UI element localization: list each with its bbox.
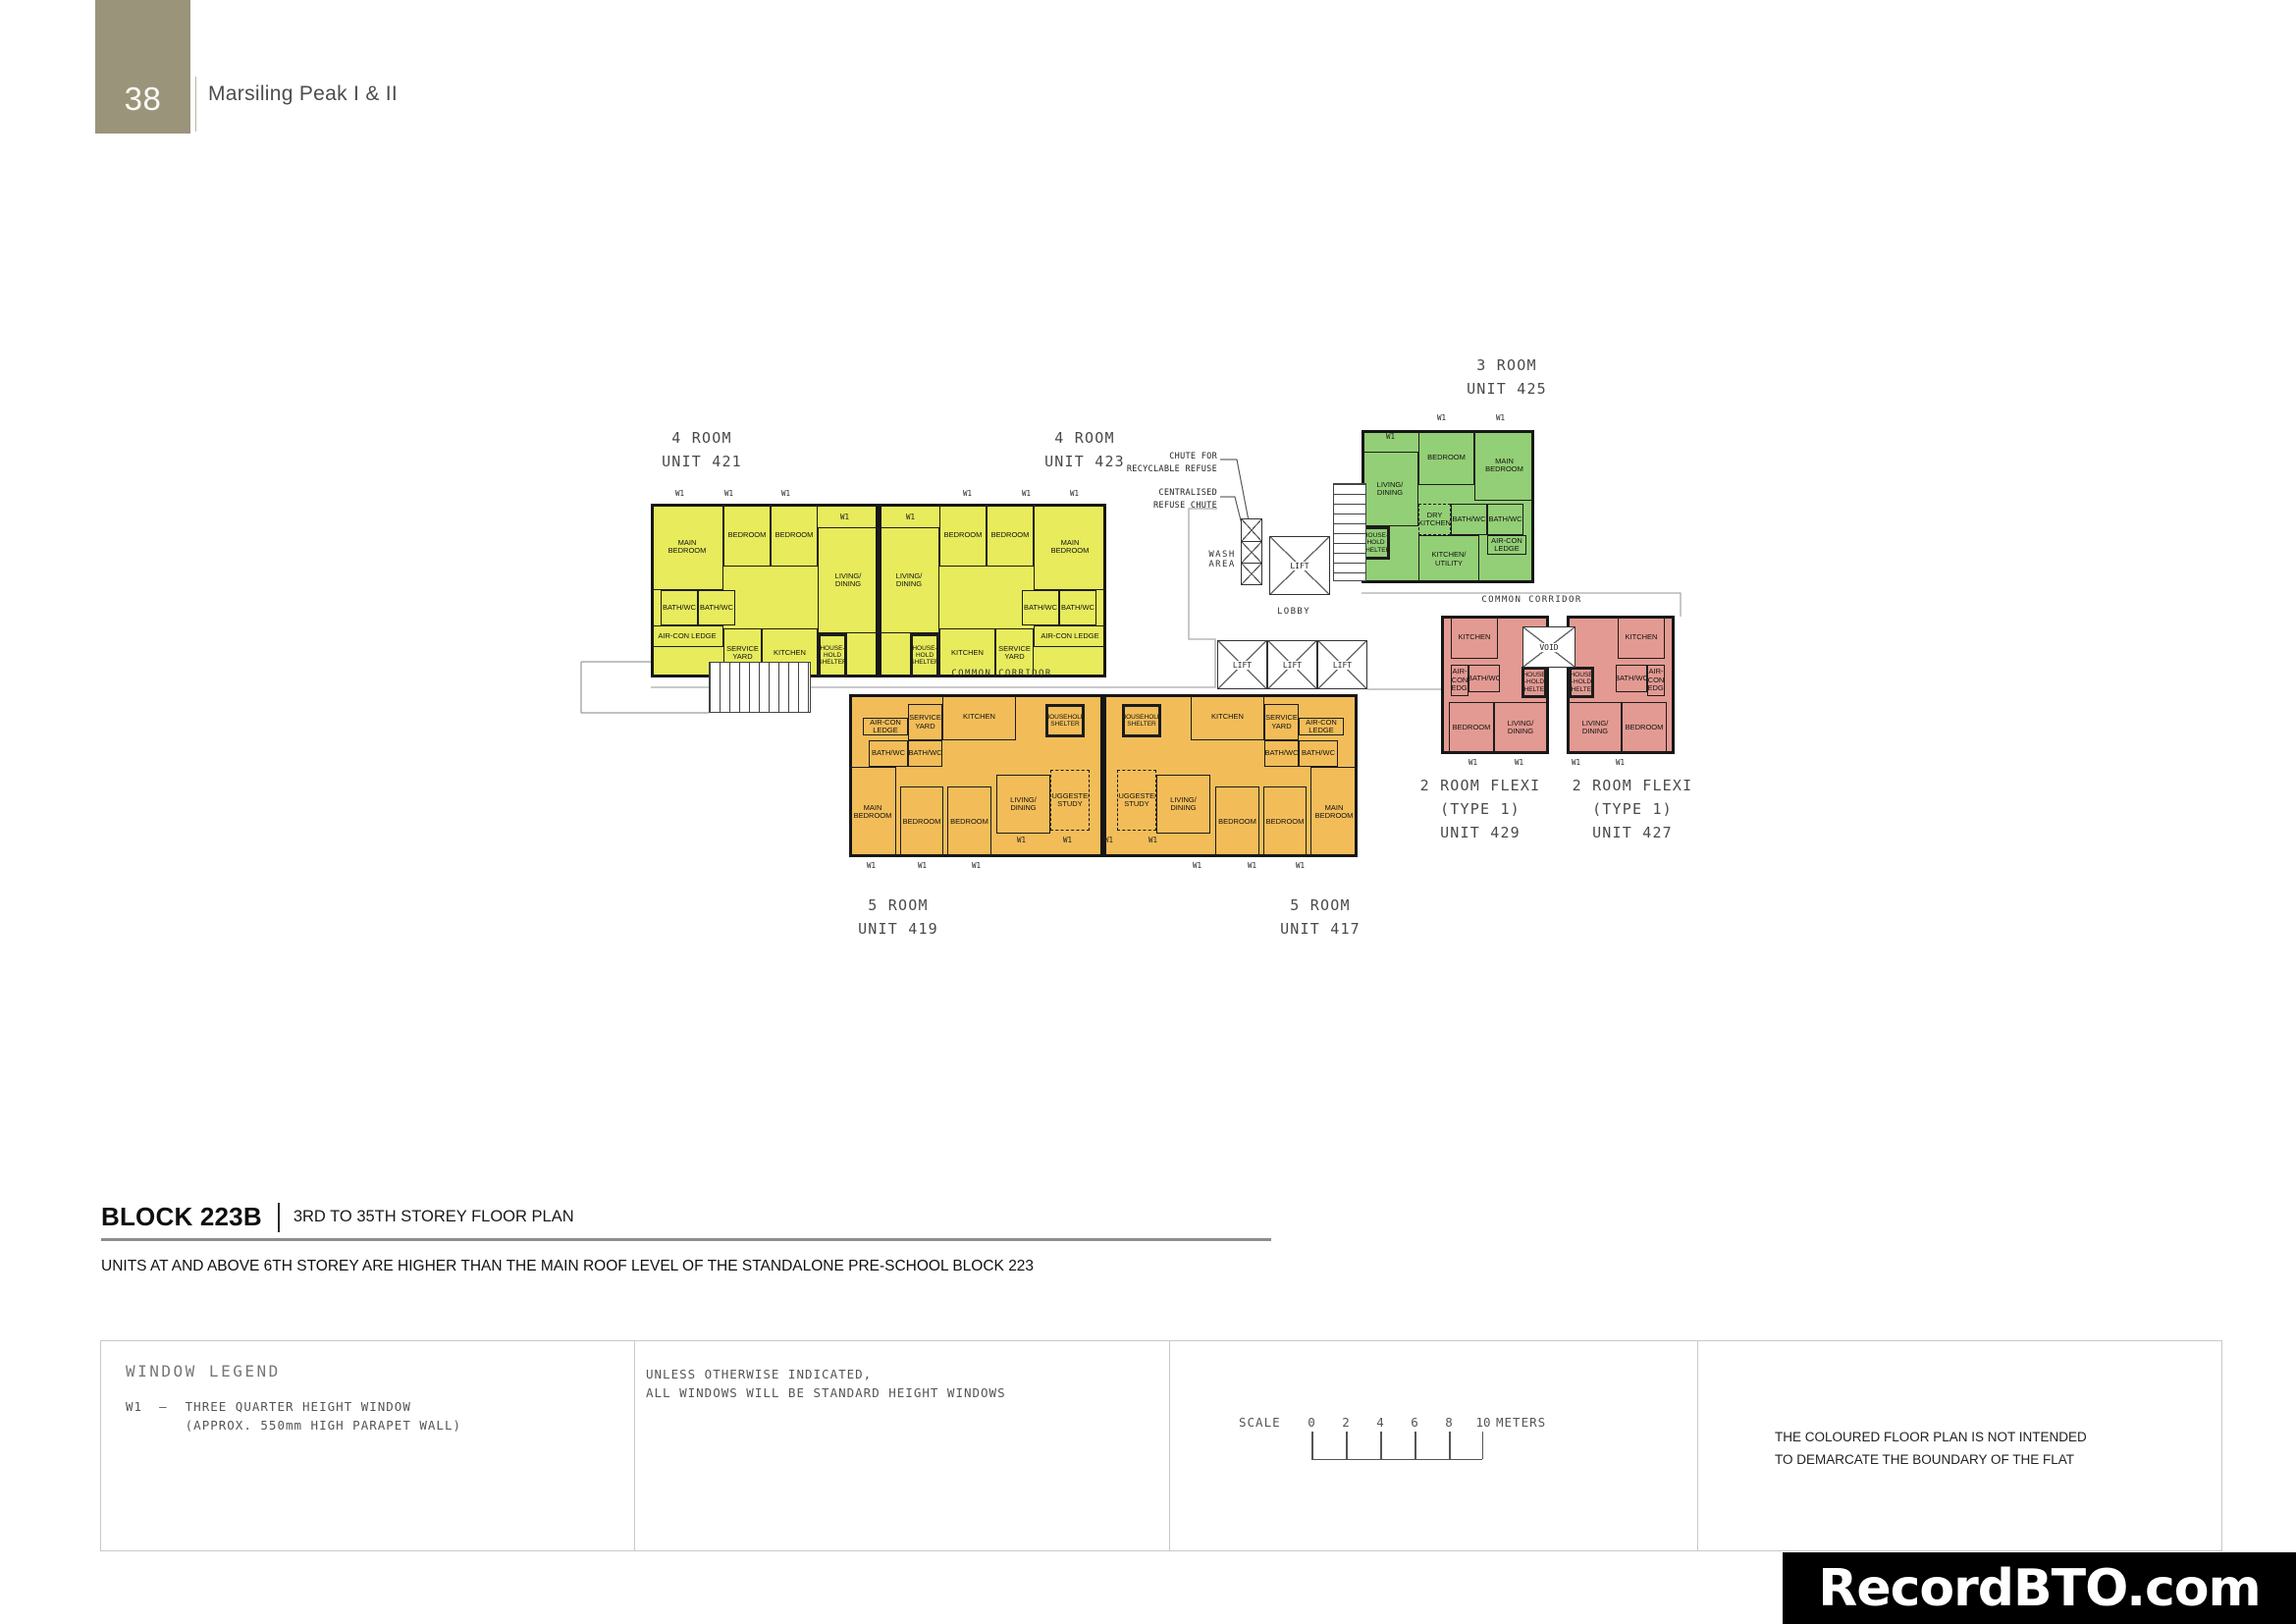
room-air-con-ledge-unit-429: AIR- CON LEDGE <box>1451 665 1468 696</box>
room-bath-wc-unit-421: BATH/WC <box>661 590 698 625</box>
annotation-chute-for: CHUTE FOR RECYCLABLE REFUSE <box>1107 451 1217 476</box>
room-bath-wc-unit-417: BATH/WC <box>1264 740 1299 767</box>
storey-subtitle: 3RD TO 35TH STOREY FLOOR PLAN <box>294 1208 574 1226</box>
w1-window-marker: W1 <box>972 861 981 870</box>
w1-window-marker: W1 <box>1148 836 1157 844</box>
w1-window-marker: W1 <box>1104 836 1113 844</box>
w1-window-marker: W1 <box>675 489 684 498</box>
title-separator <box>278 1203 280 1232</box>
storey-note: UNITS AT AND ABOVE 6TH STOREY ARE HIGHER… <box>101 1258 1034 1275</box>
footer-divider-2 <box>1169 1341 1170 1550</box>
w1-window-marker: W1 <box>1063 836 1072 844</box>
unit-417-block: AIR-CON LEDGESERVICE YARDKITCHENHOUSEHOL… <box>1103 694 1358 857</box>
block-name: BLOCK 223B <box>101 1202 262 1232</box>
room-suggested-study-unit-417: SUGGESTED STUDY <box>1117 770 1156 831</box>
unit-type-label-2: 3 ROOM UNIT 425 <box>1448 353 1566 401</box>
refuse-chute-symbol <box>1241 518 1262 585</box>
lift-shaft-0: LIFT <box>1269 536 1330 595</box>
room-bedroom-unit-417: BEDROOM <box>1263 786 1307 857</box>
annotation-centralised: CENTRALISED REFUSE CHUTE <box>1107 487 1217 513</box>
unit-type-label-4: 5 ROOM UNIT 417 <box>1261 893 1379 941</box>
common-label-lobby: LOBBY <box>1264 607 1323 617</box>
room-bedroom-unit-429: BEDROOM <box>1449 702 1494 753</box>
scale-label: SCALE <box>1239 1415 1281 1430</box>
room-main-bedroom-unit-423: MAIN BEDROOM <box>1034 504 1106 590</box>
common-label-common-corridor: COMMON CORRIDOR <box>921 669 1083 678</box>
unit-425-block: LIVING/ DININGBEDROOMMAIN BEDROOMDRY KIT… <box>1362 430 1534 583</box>
staircase-5 <box>1333 483 1366 581</box>
lift-shaft-3: LIFT <box>1317 640 1367 689</box>
brochure-page: { "page": { "number": "38", "title": "Ma… <box>0 0 2296 1624</box>
room-air-con-ledge-unit-419: AIR-CON LEDGE <box>863 718 908 735</box>
scale-number-0: 0 <box>1308 1415 1315 1430</box>
watermark-text: RecordBTO.com <box>1818 1559 2260 1618</box>
room-bath-wc-unit-423: BATH/WC <box>1022 590 1059 625</box>
w1-window-marker: W1 <box>867 861 876 870</box>
scale-unit-label: METERS <box>1496 1415 1546 1430</box>
room-bath-wc-unit-427: BATH/WC <box>1616 665 1647 692</box>
w1-window-marker: W1 <box>1572 758 1580 767</box>
w1-window-marker: W1 <box>1515 758 1523 767</box>
room-bedroom-unit-421: BEDROOM <box>723 504 771 567</box>
room-living-dining-unit-417: LIVING/ DINING <box>1156 775 1210 834</box>
unit-type-label-6: 2 ROOM FLEXI (TYPE 1) UNIT 427 <box>1569 774 1696 844</box>
room-main-bedroom-unit-417: MAIN BEDROOM <box>1310 767 1358 857</box>
w1-window-marker: W1 <box>1468 758 1477 767</box>
void-shaft-4: VOID <box>1522 626 1575 668</box>
unit-419-block: AIR-CON LEDGESERVICE YARDKITCHENHOUSEHOL… <box>849 694 1103 857</box>
room-main-bedroom-unit-421: MAIN BEDROOM <box>651 504 723 590</box>
window-legend-entry: W1 – THREE QUARTER HEIGHT WINDOW (APPROX… <box>126 1398 461 1435</box>
room-suggested-study-unit-419: SUGGESTED STUDY <box>1050 770 1090 831</box>
room-living-dining-unit-429: LIVING/ DINING <box>1494 702 1547 753</box>
room-house-hold-shelter-unit-427: HOUSE -HOLD SHELTER <box>1569 667 1594 698</box>
room-bedroom-unit-419: BEDROOM <box>900 786 943 857</box>
room-household-shelter-unit-419: HOUSEHOLD SHELTER <box>1045 704 1085 737</box>
room-living-dining-unit-421: LIVING/ DINING <box>818 527 879 633</box>
room-service-yard-unit-417: SERVICE YARD <box>1264 704 1299 740</box>
w1-window-marker: W1 <box>1616 758 1625 767</box>
scale-number-4: 4 <box>1376 1415 1384 1430</box>
block-title-row: BLOCK 223B 3RD TO 35TH STOREY FLOOR PLAN <box>101 1202 574 1232</box>
room-bedroom-unit-423: BEDROOM <box>987 504 1034 567</box>
room-kitchen-unit-427: KITCHEN <box>1618 616 1665 659</box>
room-bedroom-unit-425: BEDROOM <box>1418 430 1474 485</box>
coloured-plan-disclaimer: THE COLOURED FLOOR PLAN IS NOT INTENDEDT… <box>1775 1427 2087 1472</box>
lift-shaft-1: LIFT <box>1217 640 1267 689</box>
room-bath-wc-unit-429: BATH/WC <box>1468 665 1500 692</box>
common-label-wash-area: WASH AREA <box>1203 550 1241 569</box>
room-living-dining-unit-425: LIVING/ DINING <box>1362 452 1418 526</box>
w1-window-marker: W1 <box>781 489 790 498</box>
room-air-con-ledge-unit-425: AIR-CON LEDGE <box>1487 535 1526 555</box>
room-dry-kitchen-unit-425: DRY KITCHEN <box>1418 504 1451 535</box>
w1-window-marker: W1 <box>1022 489 1031 498</box>
room-living-dining-unit-427: LIVING/ DINING <box>1569 702 1622 753</box>
room-main-bedroom-unit-419: MAIN BEDROOM <box>849 767 896 857</box>
footer-divider-1 <box>634 1341 635 1550</box>
room-service-yard-unit-419: SERVICE YARD <box>908 704 942 740</box>
window-legend-symbol: W1 – <box>126 1398 168 1435</box>
room-bath-wc-unit-419: BATH/WC <box>908 740 942 767</box>
standard-windows-note: UNLESS OTHERWISE INDICATED,ALL WINDOWS W… <box>646 1365 1006 1403</box>
w1-window-marker: W1 <box>724 489 733 498</box>
room-kitchen-unit-417: KITCHEN <box>1191 694 1264 740</box>
room-bath-wc-unit-417: BATH/WC <box>1299 740 1338 767</box>
window-legend-description: THREE QUARTER HEIGHT WINDOW (APPROX. 550… <box>186 1398 461 1435</box>
w1-window-marker: W1 <box>906 513 915 521</box>
window-legend-title: WINDOW LEGEND <box>126 1362 281 1380</box>
room-bath-wc-unit-425: BATH/WC <box>1451 504 1487 535</box>
room-bedroom-unit-419: BEDROOM <box>947 786 991 857</box>
room-bedroom-unit-423: BEDROOM <box>939 504 987 567</box>
room-air-con-ledge-unit-423: AIR-CON LEDGE <box>1034 625 1106 647</box>
lift-label: LIFT <box>1331 661 1354 670</box>
room-main-bedroom-unit-425: MAIN BEDROOM <box>1474 430 1534 501</box>
scale-number-10: 10 <box>1475 1415 1490 1430</box>
w1-window-marker: W1 <box>1496 413 1505 422</box>
room-kitchen-utility-unit-425: KITCHEN/ UTILITY <box>1418 535 1479 583</box>
watermark-banner: RecordBTO.com <box>1783 1552 2296 1624</box>
w1-window-marker: W1 <box>840 513 849 521</box>
unit-type-label-3: 5 ROOM UNIT 419 <box>839 893 957 941</box>
w1-window-marker: W1 <box>963 489 972 498</box>
footer-divider-3 <box>1697 1341 1698 1550</box>
scale-number-8: 8 <box>1445 1415 1453 1430</box>
w1-window-marker: W1 <box>1437 413 1446 422</box>
room-bedroom-unit-421: BEDROOM <box>771 504 818 567</box>
room-air-con-ledge-unit-417: AIR-CON LEDGE <box>1299 718 1344 735</box>
room-bath-wc-unit-421: BATH/WC <box>698 590 735 625</box>
w1-window-marker: W1 <box>1070 489 1079 498</box>
room-living-dining-unit-423: LIVING/ DINING <box>879 527 939 633</box>
w1-window-marker: W1 <box>918 861 927 870</box>
room-kitchen-unit-419: KITCHEN <box>942 694 1016 740</box>
scale-ruler <box>1311 1432 1482 1460</box>
room-bath-wc-unit-423: BATH/WC <box>1059 590 1096 625</box>
w1-window-marker: W1 <box>1193 861 1201 870</box>
w1-window-marker: W1 <box>1017 836 1026 844</box>
w1-window-marker: W1 <box>1296 861 1305 870</box>
lift-label: LIFT <box>1288 562 1310 570</box>
room-bedroom-unit-427: BEDROOM <box>1622 702 1667 753</box>
unit-427-block: KITCHENAIR- CON LEDGEBATH/WCHOUSE -HOLD … <box>1567 616 1675 754</box>
room-bath-wc-unit-425: BATH/WC <box>1487 504 1523 535</box>
room-air-con-ledge-unit-427: AIR- CON LEDGE <box>1647 665 1665 696</box>
room-household-shelter-unit-417: HOUSEHOLD SHELTER <box>1122 704 1161 737</box>
scale-number-6: 6 <box>1411 1415 1418 1430</box>
room-house-hold-shelter-unit-429: HOUSE -HOLD SHELTER <box>1522 667 1547 698</box>
room-air-con-ledge-unit-421: AIR-CON LEDGE <box>651 625 723 647</box>
staircase-6 <box>709 662 811 713</box>
unit-type-label-0: 4 ROOM UNIT 421 <box>643 426 761 473</box>
room-kitchen-unit-429: KITCHEN <box>1451 616 1498 659</box>
common-label-common-corridor: COMMON CORRIDOR <box>1451 595 1613 605</box>
room-bedroom-unit-417: BEDROOM <box>1215 786 1259 857</box>
w1-window-marker: W1 <box>1386 432 1395 441</box>
unit-423-block: MAIN BEDROOMBEDROOMBEDROOMLIVING/ DINING… <box>879 504 1106 677</box>
void-label: VOID <box>1537 643 1560 652</box>
room-house-hold-shelter-unit-421: HOUSE- HOLD SHELTER <box>818 633 847 677</box>
room-bath-wc-unit-419: BATH/WC <box>869 740 908 767</box>
lift-label: LIFT <box>1281 661 1304 670</box>
lift-label: LIFT <box>1231 661 1254 670</box>
scale-number-2: 2 <box>1342 1415 1350 1430</box>
unit-421-block: MAIN BEDROOMBEDROOMBEDROOMLIVING/ DINING… <box>651 504 879 677</box>
title-rule <box>101 1238 1271 1241</box>
w1-window-marker: W1 <box>1248 861 1256 870</box>
room-living-dining-unit-419: LIVING/ DINING <box>996 775 1050 834</box>
unit-type-label-5: 2 ROOM FLEXI (TYPE 1) UNIT 429 <box>1416 774 1544 844</box>
lift-shaft-2: LIFT <box>1267 640 1317 689</box>
